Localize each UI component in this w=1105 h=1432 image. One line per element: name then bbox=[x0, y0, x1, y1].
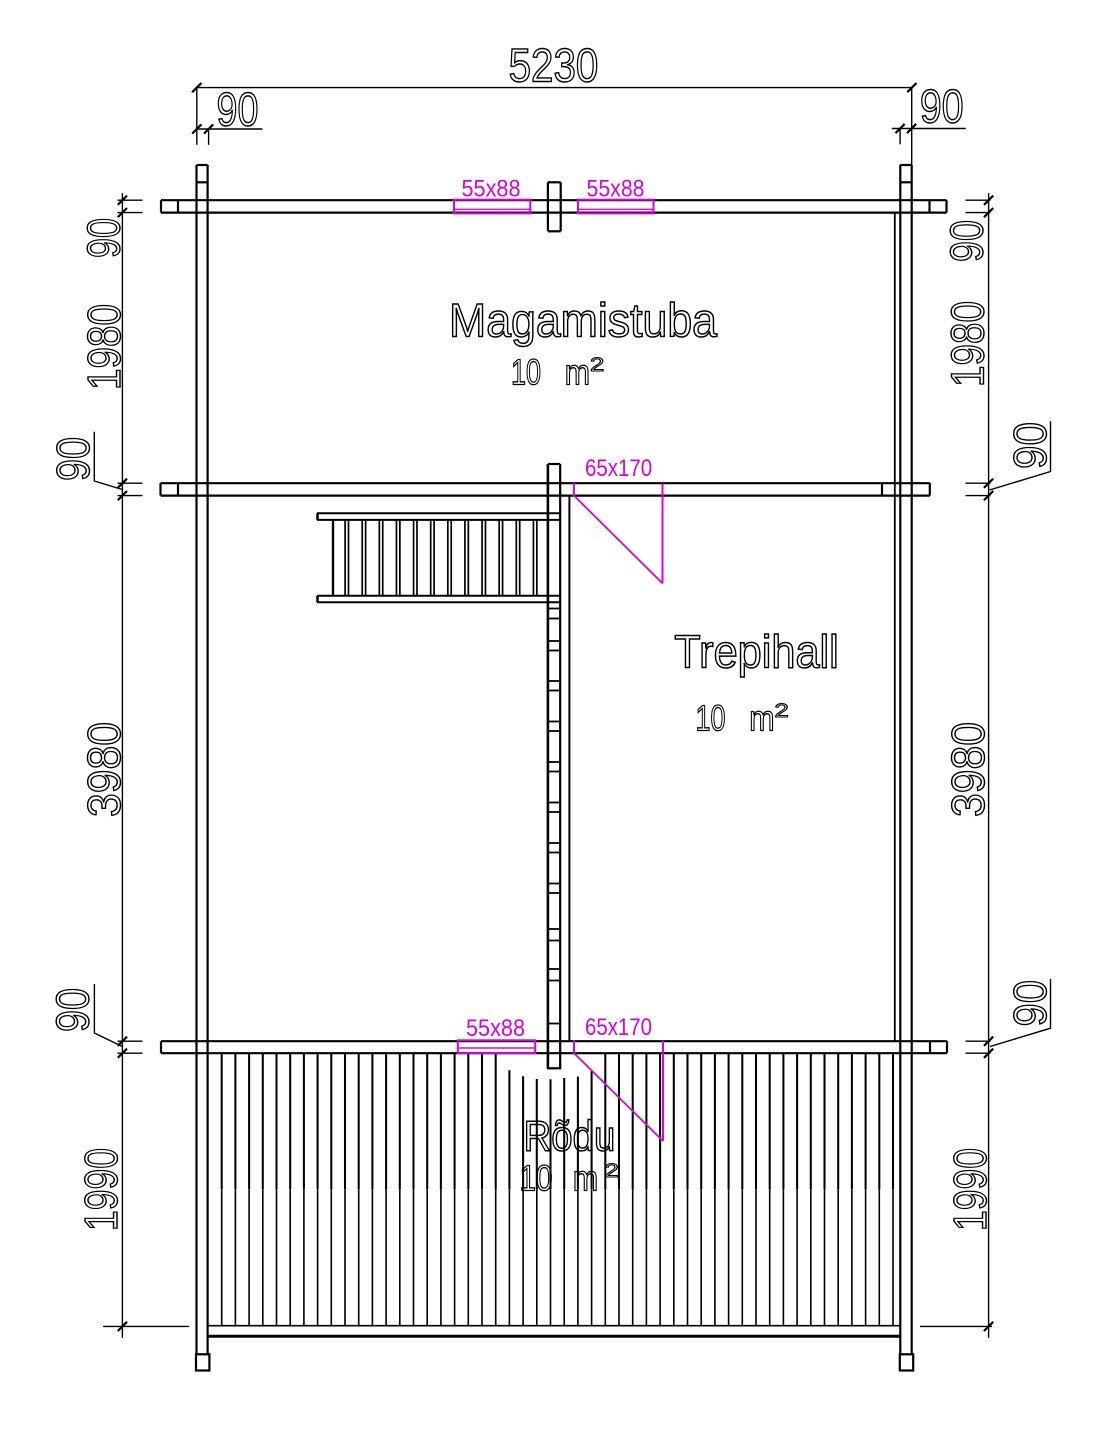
svg-text:m: m bbox=[573, 1158, 598, 1199]
svg-text:3980: 3980 bbox=[78, 722, 130, 817]
svg-text:55x88: 55x88 bbox=[462, 176, 521, 203]
svg-text:10: 10 bbox=[520, 1158, 553, 1199]
svg-text:90: 90 bbox=[217, 83, 259, 136]
svg-text:65x170: 65x170 bbox=[585, 455, 652, 482]
svg-text:90: 90 bbox=[47, 437, 99, 481]
svg-text:2: 2 bbox=[605, 1161, 619, 1182]
svg-text:1980: 1980 bbox=[78, 304, 130, 390]
svg-text:m: m bbox=[565, 352, 590, 393]
svg-text:2: 2 bbox=[590, 355, 604, 376]
svg-text:10: 10 bbox=[696, 697, 726, 738]
svg-text:90: 90 bbox=[78, 218, 130, 258]
svg-text:1990: 1990 bbox=[75, 1148, 127, 1231]
svg-text:90: 90 bbox=[1004, 422, 1056, 469]
svg-text:55x88: 55x88 bbox=[587, 176, 645, 203]
svg-text:5230: 5230 bbox=[509, 39, 599, 92]
svg-text:2: 2 bbox=[775, 701, 789, 722]
svg-text:90: 90 bbox=[941, 220, 993, 262]
svg-text:1980: 1980 bbox=[942, 301, 994, 387]
svg-text:90: 90 bbox=[47, 988, 99, 1032]
svg-text:90: 90 bbox=[1004, 980, 1056, 1027]
svg-text:65x170: 65x170 bbox=[585, 1014, 652, 1041]
svg-text:10: 10 bbox=[511, 352, 541, 393]
svg-text:Trepihall: Trepihall bbox=[674, 625, 839, 677]
svg-text:Rõdu: Rõdu bbox=[524, 1113, 616, 1161]
svg-text:m: m bbox=[749, 697, 774, 738]
svg-text:55x88: 55x88 bbox=[466, 1015, 525, 1042]
svg-text:3980: 3980 bbox=[942, 722, 994, 817]
svg-text:Magamistuba: Magamistuba bbox=[449, 294, 718, 347]
svg-text:1990: 1990 bbox=[944, 1148, 996, 1231]
svg-text:90: 90 bbox=[920, 79, 964, 132]
